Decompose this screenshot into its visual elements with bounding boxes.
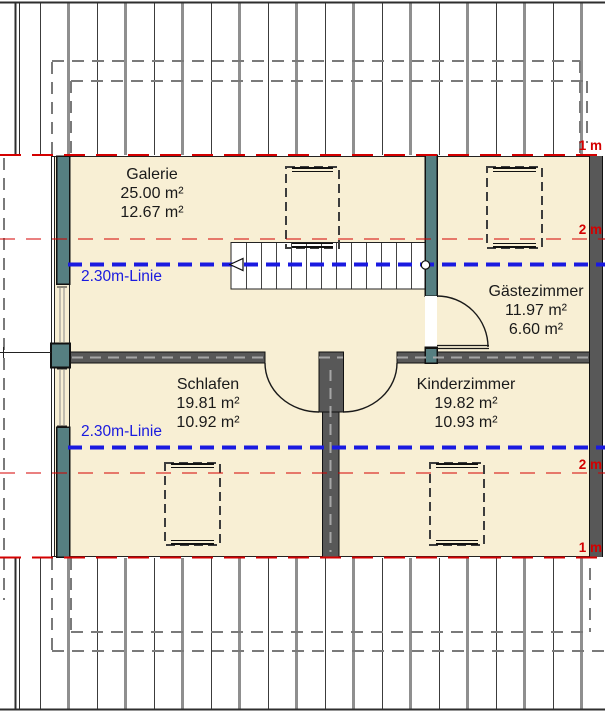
room-name: Gästezimmer (488, 282, 583, 301)
room-label-schlafen: Schlafen 19.81 m² 10.92 m² (176, 375, 239, 432)
door-leaves-center (319, 352, 344, 412)
floorplan-canvas: Galerie 25.00 m² 12.67 m² Gästezimmer 11… (0, 0, 605, 720)
room-area-living: 10.92 m² (176, 413, 239, 432)
room-name: Schlafen (176, 375, 239, 394)
room-area-total: 25.00 m² (120, 184, 183, 203)
floorplan-drawing (0, 0, 605, 720)
wall-galerie-gaestezimmer (425, 155, 437, 363)
room-name: Kinderzimmer (417, 375, 516, 394)
height-mark-top-2m: 2 m (579, 222, 602, 237)
height-mark-bottom-2m: 2 m (579, 457, 602, 472)
room-area-living: 6.60 m² (488, 320, 583, 339)
room-label-galerie: Galerie 25.00 m² 12.67 m² (120, 165, 183, 222)
stairs (231, 243, 425, 290)
room-label-kinderzimmer: Kinderzimmer 19.82 m² 10.93 m² (417, 375, 516, 432)
wall-right-gable (590, 156, 603, 557)
roof-rafters-top (41, 3, 582, 155)
room-area-total: 19.82 m² (417, 394, 516, 413)
roof-rafters-bottom (41, 558, 582, 709)
room-area-total: 11.97 m² (488, 301, 583, 320)
room-area-total: 19.81 m² (176, 394, 239, 413)
wall-junction-block-left (51, 344, 70, 368)
room-area-living: 12.67 m² (120, 203, 183, 222)
room-area-living: 10.93 m² (417, 413, 516, 432)
blue-line-label-lower: 2.30m-Linie (81, 423, 162, 441)
room-name: Galerie (120, 165, 183, 184)
blue-line-label-upper: 2.30m-Linie (81, 268, 162, 286)
room-label-gaestezimmer: Gästezimmer 11.97 m² 6.60 m² (488, 282, 583, 339)
height-mark-top-1m: 1 m (579, 138, 602, 153)
wall-left-gable (0, 156, 70, 557)
walkline-start-circle (421, 261, 429, 269)
height-mark-bottom-1m: 1 m (579, 540, 602, 555)
